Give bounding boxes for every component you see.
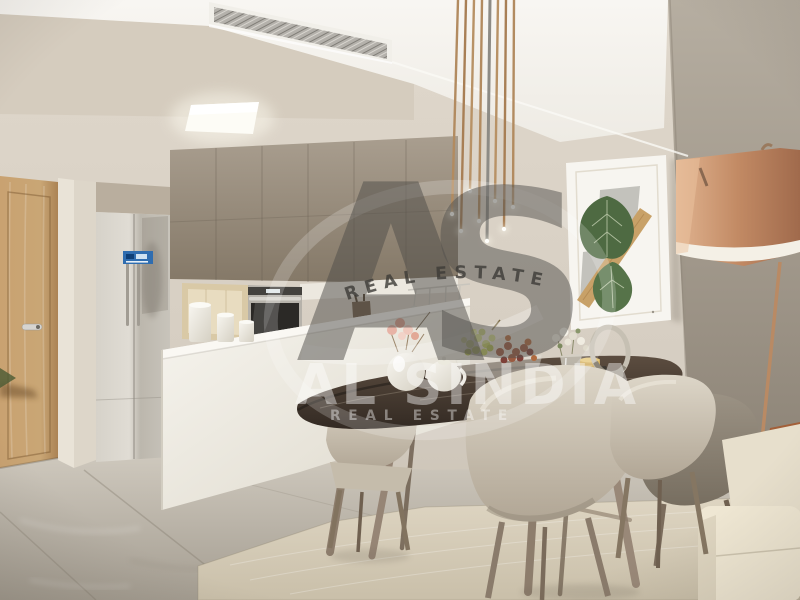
scene-canvas: A S REAL ESTATE AL SINDIA REAL ESTATE [0,0,800,600]
interior-render-image: A S REAL ESTATE AL SINDIA REAL ESTATE [0,0,800,600]
vignette-overlay [0,0,800,600]
